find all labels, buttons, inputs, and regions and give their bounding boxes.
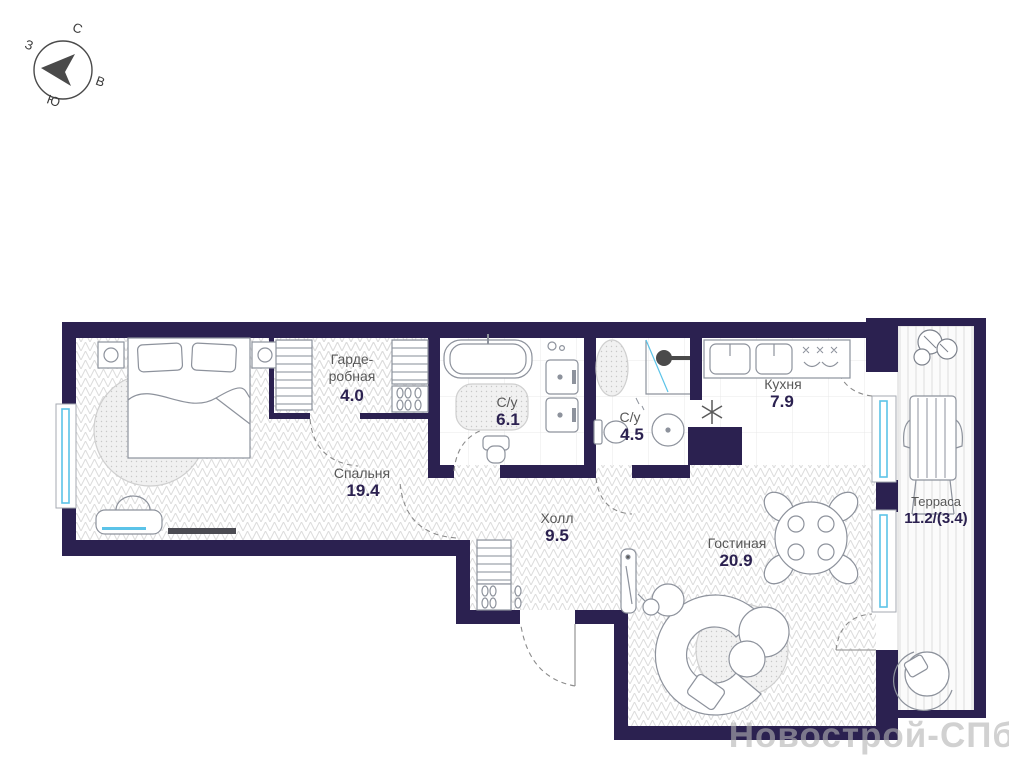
shoe-icon — [490, 598, 496, 608]
compass-east: В — [94, 73, 107, 90]
wall-wardrobe-bottom-b — [360, 413, 430, 419]
pillow-left — [137, 343, 182, 372]
wall-kitchen-block — [688, 427, 742, 465]
shoe-icon — [415, 388, 421, 398]
sink-faucet-icon — [572, 370, 576, 384]
bedroom-label: Спальня — [334, 465, 390, 481]
wall-bath-bottom-c — [632, 465, 690, 478]
living-terrace-window — [872, 510, 896, 612]
washer-handle-icon — [572, 408, 576, 422]
wall-bath-separator — [584, 338, 596, 465]
wall-top — [62, 322, 898, 338]
hall-wardrobe — [477, 540, 511, 584]
coffee-table-small — [729, 641, 765, 677]
plate-icon — [788, 516, 804, 532]
wall-hall-bottom-left — [456, 610, 520, 624]
floor-plan-page: Гарде- робная 4.0 С/у 6.1 С/у 4.5 Кухня … — [0, 0, 1009, 768]
pillow-right — [191, 343, 236, 372]
terrace-label: Терраса — [911, 494, 962, 509]
wall-living-left — [614, 610, 628, 740]
toilet-tank-2 — [594, 420, 602, 444]
shoe-icon — [415, 400, 421, 410]
wall-bedroom-bottom — [62, 540, 470, 556]
bathroom-large-label: С/у — [497, 394, 518, 410]
wall-bath-large-left — [428, 338, 440, 465]
wardrobe-rack-left — [276, 340, 312, 410]
shoe-icon — [397, 388, 403, 398]
shoe-icon — [515, 598, 521, 608]
shoe-icon — [482, 598, 488, 608]
shoe-icon — [397, 400, 403, 410]
floor-plan-svg: Гарде- робная 4.0 С/у 6.1 С/у 4.5 Кухня … — [0, 0, 1009, 768]
watermark: Новострой-СПб — [729, 716, 1009, 756]
living-label: Гостиная — [708, 535, 767, 551]
bedroom-window — [56, 404, 76, 508]
wall-bath-bottom-b — [500, 465, 596, 478]
bedroom-console — [168, 528, 236, 534]
entrance-door-arc — [521, 626, 575, 686]
washer-dial-icon — [558, 413, 562, 417]
wall-bath-bottom-a — [428, 465, 454, 478]
wall-wardrobe-bottom-a — [269, 413, 310, 419]
sink-drain-icon — [666, 428, 670, 432]
wall-window-divider — [876, 480, 898, 512]
living-area: 20.9 — [719, 551, 752, 570]
shoe-icon — [515, 586, 521, 596]
wall-bath-kitchen-upper — [690, 338, 702, 400]
hall-area: 9.5 — [545, 526, 569, 545]
plate-icon — [818, 516, 834, 532]
compass-west: З — [23, 36, 36, 53]
shoe-icon — [482, 586, 488, 596]
wall-terrace-right — [974, 318, 986, 718]
bathroom-small-area: 4.5 — [620, 425, 644, 444]
floor-lamp-icon — [643, 599, 659, 615]
bathroom-large-area: 6.1 — [496, 410, 520, 429]
bedroom-area: 19.4 — [346, 481, 380, 500]
hall-label: Холл — [541, 510, 574, 526]
compass: С В Ю З — [23, 19, 107, 110]
kitchen-label: Кухня — [764, 376, 801, 392]
terrace-area: 11.2/(3.4) — [904, 510, 967, 527]
wardrobe-area: 4.0 — [340, 386, 364, 405]
compass-north: С — [71, 19, 85, 36]
bathroom-small-label: С/у — [620, 409, 641, 425]
bench — [96, 510, 162, 534]
kitchen-terrace-window — [872, 396, 896, 482]
sink-drain-icon — [558, 375, 562, 379]
bath-small-rug — [596, 340, 628, 396]
lamp-right-icon — [258, 348, 272, 362]
plate-icon — [788, 544, 804, 560]
wall-terrace-jog — [866, 318, 898, 372]
wall-terrace-top — [898, 318, 978, 326]
plate-icon — [818, 544, 834, 560]
wardrobe-label: Гарде- — [331, 351, 374, 367]
shoe-icon — [405, 400, 411, 410]
shoe-icon — [405, 388, 411, 398]
bench-accent — [102, 527, 146, 530]
shoe-icon — [490, 586, 496, 596]
kitchen-area: 7.9 — [770, 392, 794, 411]
toilet-bowl-1 — [487, 446, 505, 463]
mirror-dot-icon — [626, 555, 630, 559]
lamp-left-icon — [104, 348, 118, 362]
dining-table — [775, 502, 847, 574]
wardrobe-label-2: робная — [329, 368, 376, 384]
wardrobe-rack-right — [392, 340, 428, 384]
